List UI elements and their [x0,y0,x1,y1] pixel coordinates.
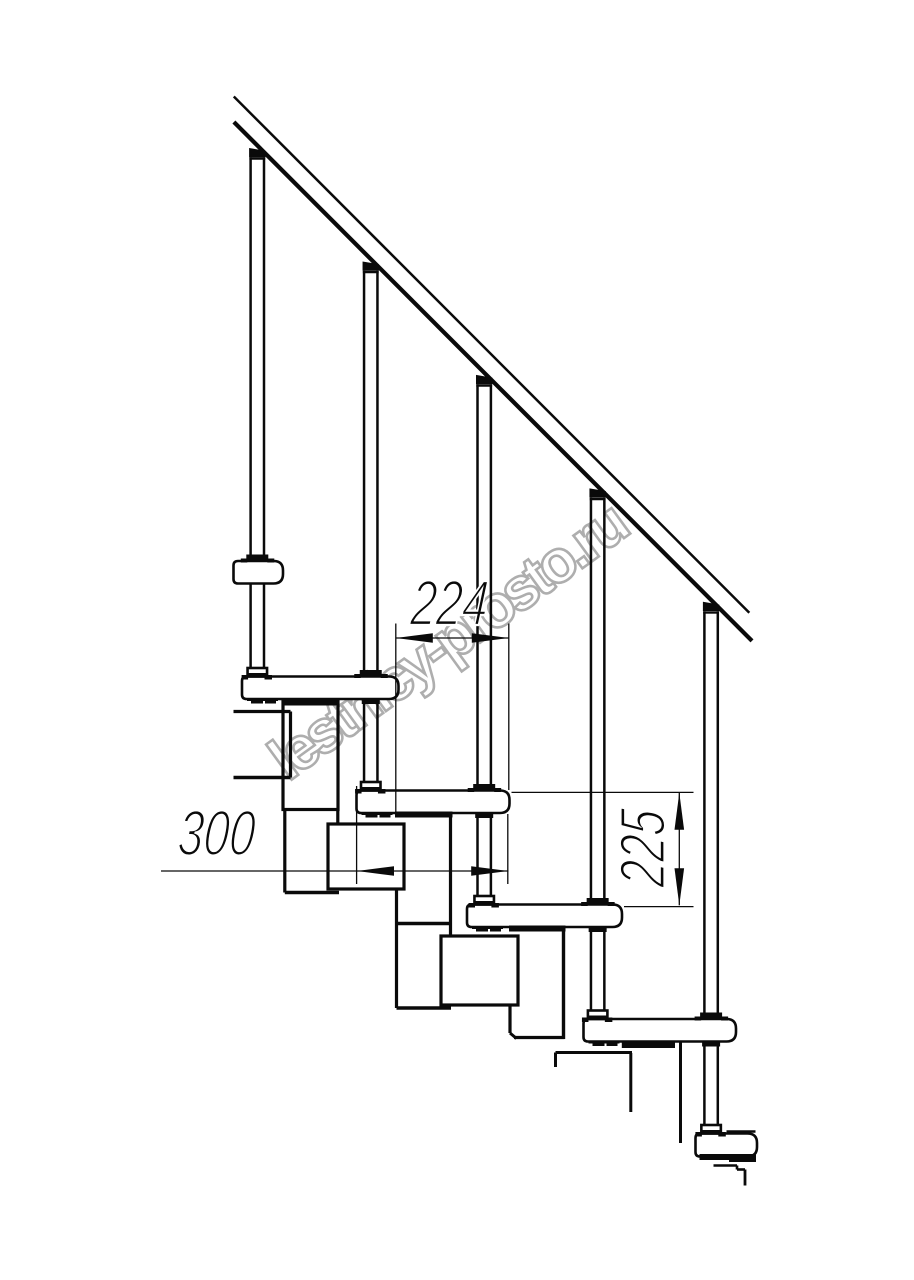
svg-text:225: 225 [606,806,678,890]
svg-text:300: 300 [176,797,258,869]
svg-text:224: 224 [408,567,491,639]
